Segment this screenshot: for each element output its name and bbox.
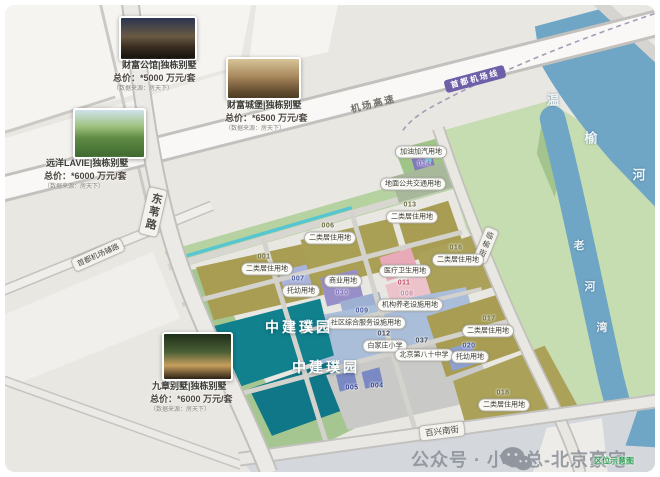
map-canvas — [5, 5, 655, 472]
screenshot-frame: 东苇路 首都机场辅路 机场高速 首都机场线 临榆街 百兴南街 温 榆 河 老 河… — [0, 0, 660, 477]
location-map: 东苇路 首都机场辅路 机场高速 首都机场线 临榆街 百兴南街 温 榆 河 老 河… — [5, 5, 655, 472]
